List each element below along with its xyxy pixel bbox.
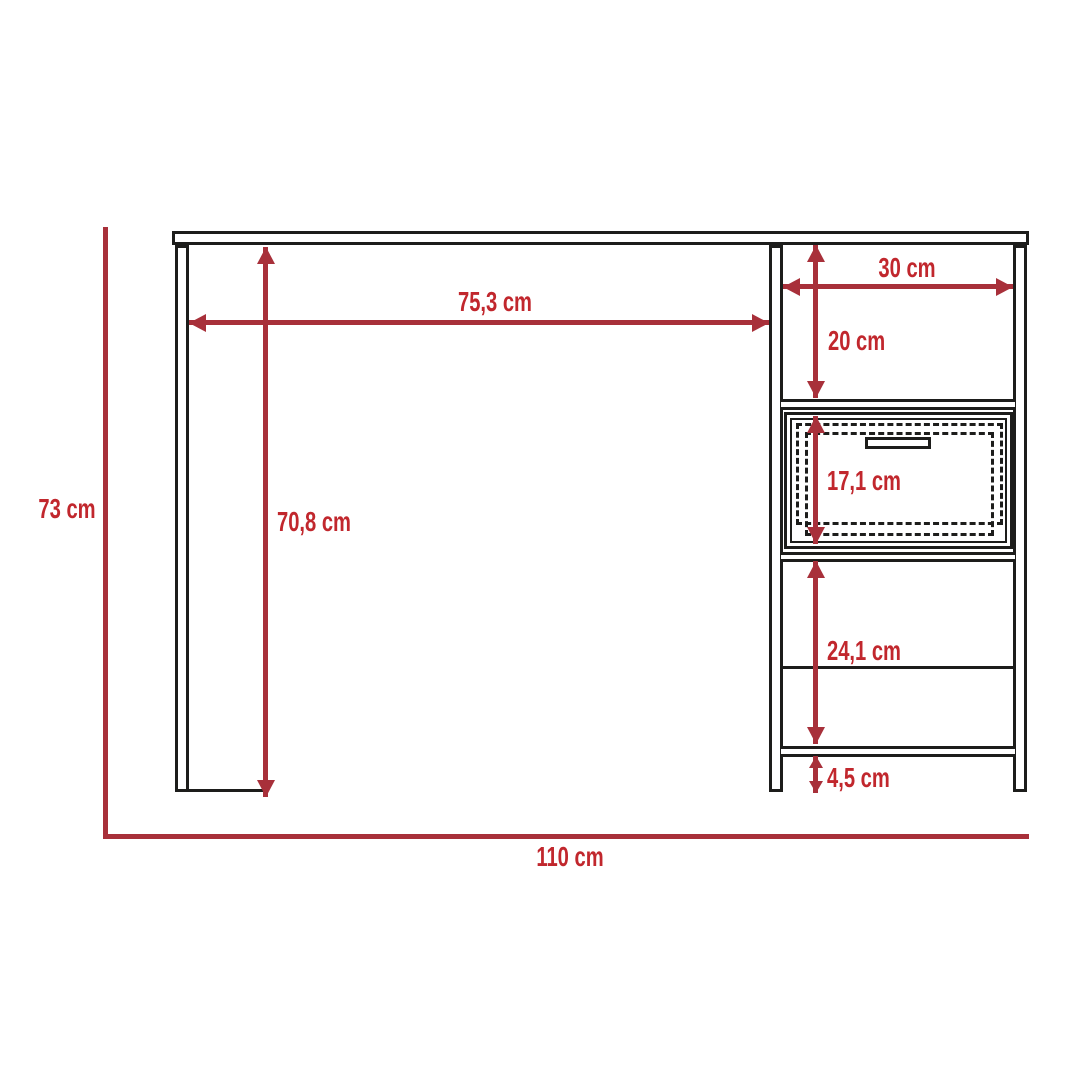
dim-arrow-drawer-height (813, 416, 818, 544)
dimension-label-lower-shelf-height: 24,1 cm (827, 635, 901, 667)
dimension-label-drawer-height: 17,1 cm (827, 465, 901, 497)
dim-arrow-leg-height (263, 247, 268, 797)
dimension-diagram-canvas: 73 cm 75,3 cm 70,8 cm 30 cm 20 cm 17,1 c… (0, 0, 1090, 1090)
left-leg-base-line (186, 789, 266, 792)
dimension-label-top-shelf-height: 20 cm (828, 325, 885, 357)
drawer-handle (865, 437, 931, 449)
overall-width-extension-line (103, 834, 1029, 839)
dimension-label-desktop-span: 75,3 cm (458, 286, 532, 318)
dim-arrow-base-height (813, 756, 818, 793)
dimension-label-leg-height: 70,8 cm (277, 506, 351, 538)
dimension-label-cabinet-width: 30 cm (878, 252, 935, 284)
dim-arrow-desktop-span (189, 320, 769, 325)
left-leg-panel (175, 245, 189, 792)
dim-arrow-lower-shelf-height (813, 561, 818, 744)
cabinet-top-shelf-board (781, 399, 1015, 410)
dimension-label-overall-height: 73 cm (38, 493, 95, 525)
overall-height-extension-line (103, 227, 108, 839)
dimension-label-base-height: 4,5 cm (827, 762, 890, 794)
dimension-label-overall-width: 110 cm (536, 841, 603, 873)
dim-arrow-top-shelf-height (813, 245, 818, 398)
desk-top-panel (172, 231, 1029, 245)
cabinet-left-panel (769, 245, 783, 792)
cabinet-right-panel (1013, 245, 1027, 792)
